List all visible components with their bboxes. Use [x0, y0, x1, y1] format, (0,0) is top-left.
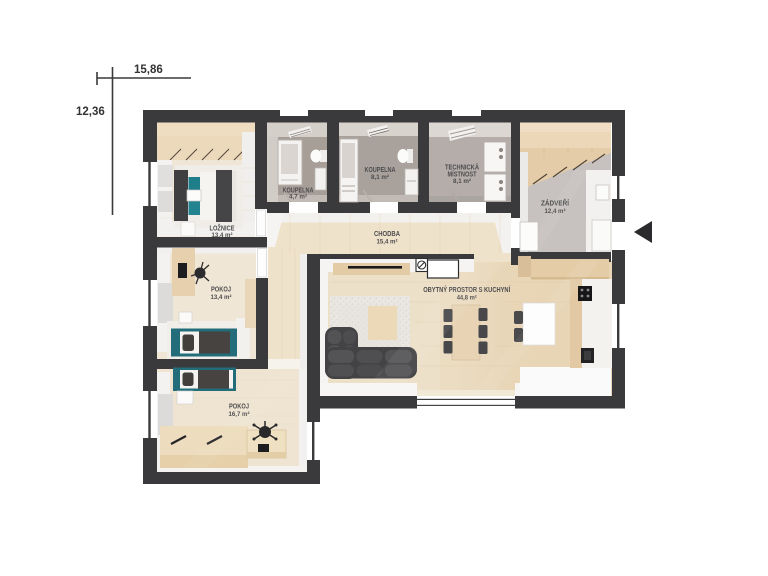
svg-text:12,36: 12,36 [76, 106, 105, 118]
svg-text:13,4 m²: 13,4 m² [212, 232, 234, 239]
svg-text:13,4 m²: 13,4 m² [211, 294, 233, 301]
svg-text:KOUPELNA: KOUPELNA [365, 167, 396, 174]
svg-text:4,7 m²: 4,7 m² [289, 194, 308, 201]
svg-text:15,86: 15,86 [134, 64, 163, 76]
svg-text:POKOJ: POKOJ [211, 287, 231, 294]
svg-text:CHODBA: CHODBA [374, 231, 400, 238]
svg-text:8,1 m²: 8,1 m² [453, 178, 472, 185]
svg-text:8,1 m²: 8,1 m² [371, 174, 390, 181]
svg-text:15,4 m²: 15,4 m² [377, 239, 399, 246]
svg-text:TECHNICKÁ: TECHNICKÁ [445, 163, 479, 172]
